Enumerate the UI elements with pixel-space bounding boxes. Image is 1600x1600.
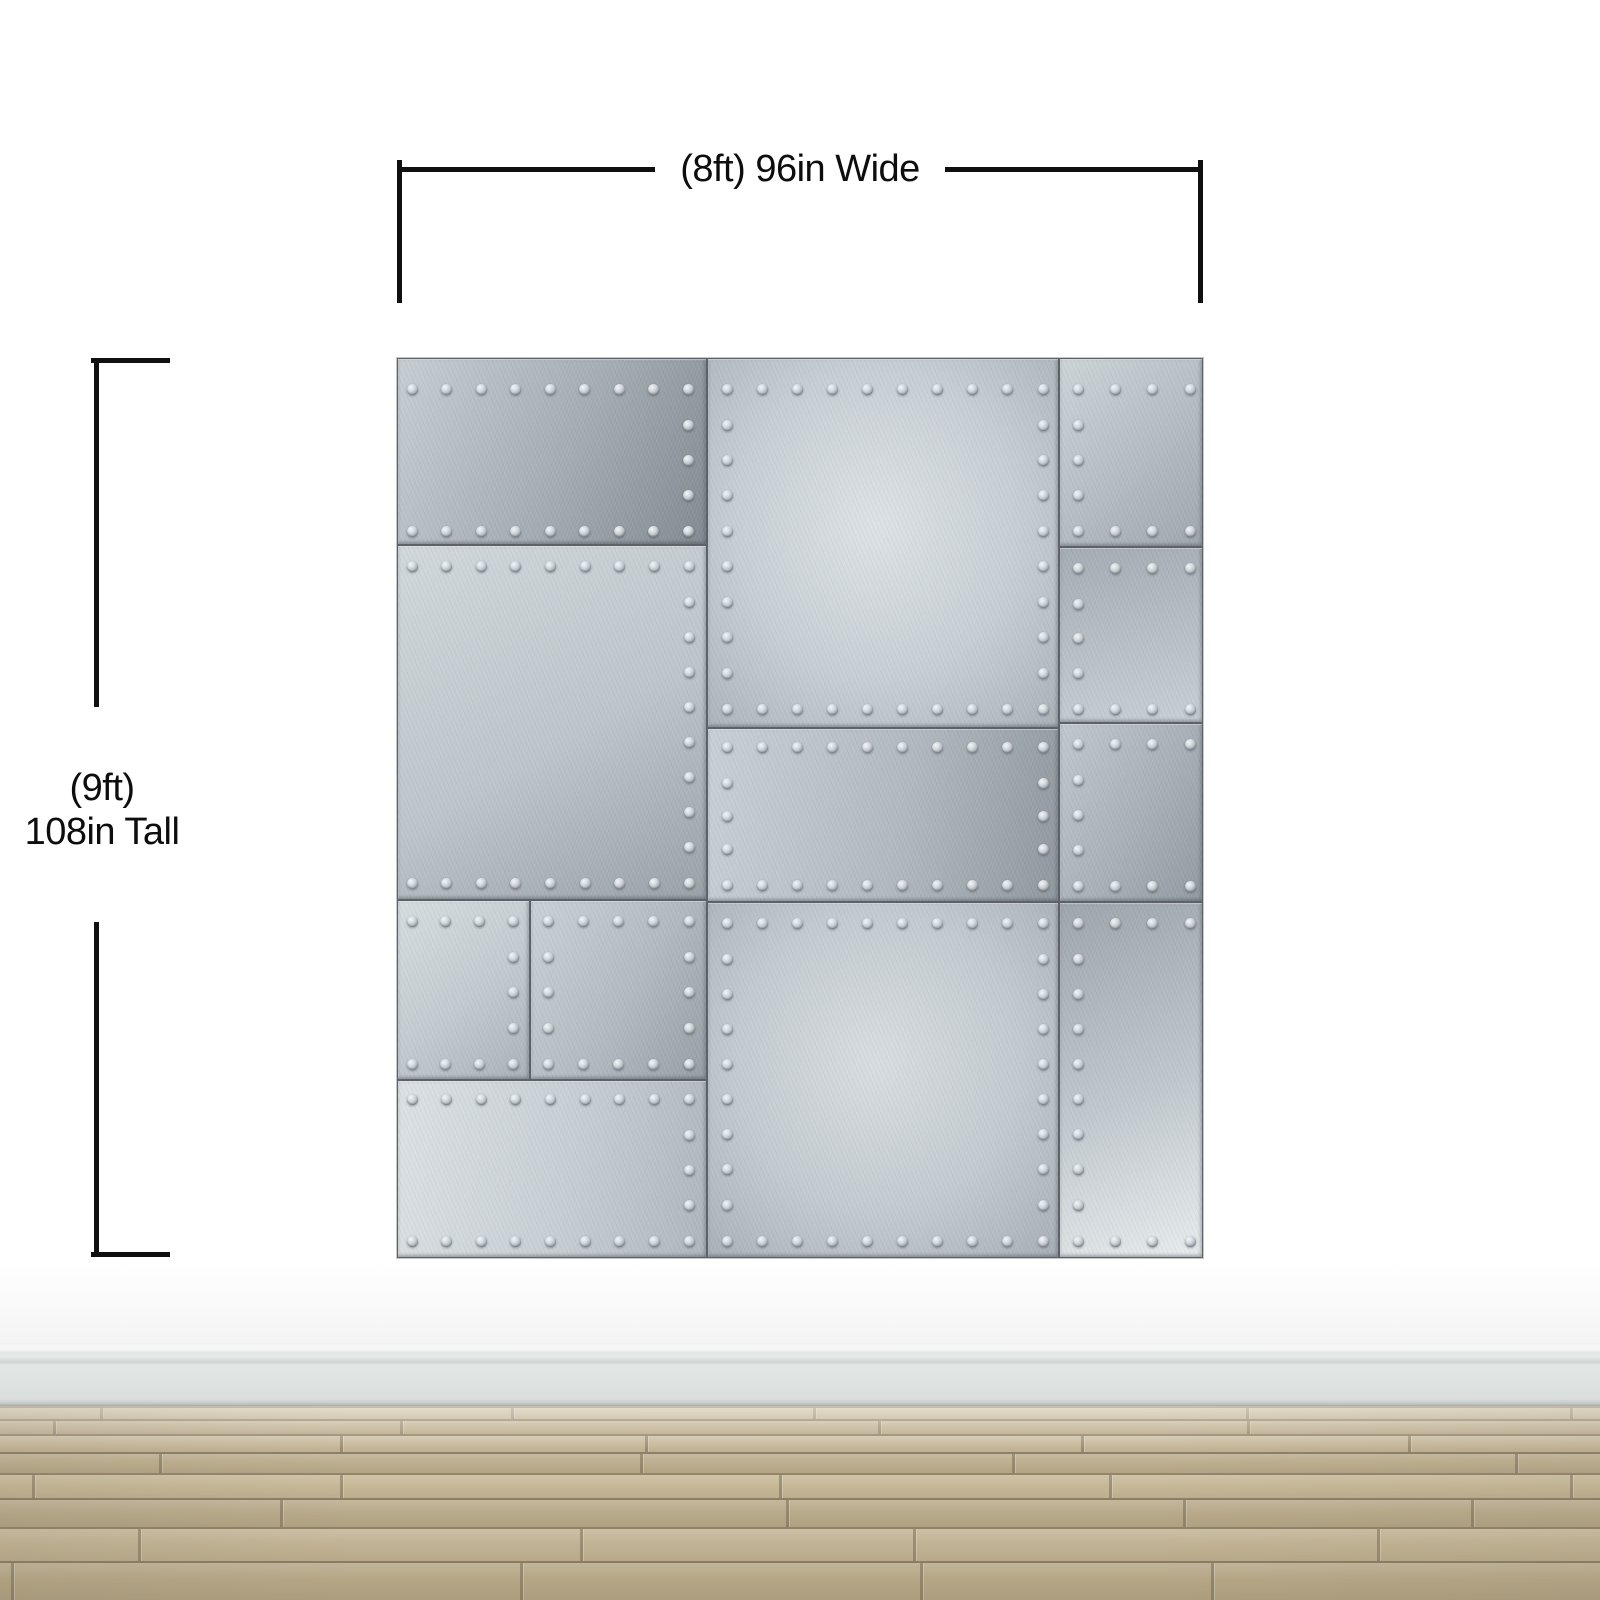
rivet	[1038, 844, 1049, 855]
rivet	[684, 632, 695, 643]
floor-plank-row	[0, 1419, 1600, 1434]
rivet	[578, 1059, 589, 1070]
rivet	[545, 878, 556, 889]
rivet	[1185, 918, 1196, 929]
plank-joint	[580, 1529, 583, 1563]
rivet	[1073, 954, 1084, 965]
rivet	[722, 742, 733, 753]
rivet	[827, 1236, 838, 1247]
rivet	[1002, 1236, 1013, 1247]
rivet	[1073, 989, 1084, 1000]
rivet	[1038, 420, 1049, 431]
rivet	[683, 490, 694, 501]
plank-joint	[32, 1475, 35, 1500]
rivet	[792, 880, 803, 891]
rivet	[757, 704, 768, 715]
rivet	[1002, 880, 1013, 891]
rivet	[1038, 455, 1049, 466]
rivet	[1147, 918, 1158, 929]
rivet	[684, 667, 695, 678]
rivet	[1073, 845, 1084, 856]
rivet	[543, 987, 554, 998]
brushed-metal-texture	[398, 546, 706, 899]
height-label: (9ft) 108in Tall	[0, 766, 204, 854]
rivet	[684, 702, 695, 713]
rivet	[407, 1059, 418, 1070]
rivet	[932, 880, 943, 891]
rivet	[897, 704, 908, 715]
rivet	[1185, 563, 1196, 574]
floor-plank-row	[0, 1452, 1600, 1473]
rivet	[967, 918, 978, 929]
rivet	[722, 844, 733, 855]
rivet	[684, 987, 695, 998]
rivet	[1002, 742, 1013, 753]
rivet	[649, 1236, 660, 1247]
rivet	[543, 916, 554, 927]
rivet	[722, 880, 733, 891]
rivet	[722, 632, 733, 643]
rivet	[1073, 633, 1084, 644]
rivet	[613, 1059, 624, 1070]
rivet	[1147, 739, 1158, 750]
width-label: (8ft) 96in Wide	[640, 147, 960, 191]
rivet	[649, 878, 660, 889]
rivet	[407, 1094, 418, 1105]
rivet	[757, 918, 768, 929]
rivet	[649, 1094, 660, 1105]
rivet	[441, 878, 452, 889]
rivet	[722, 597, 733, 608]
rivet	[862, 704, 873, 715]
rivet	[1038, 668, 1049, 679]
rivet	[614, 561, 625, 572]
rivet	[508, 1059, 519, 1070]
rivet	[722, 1024, 733, 1035]
rivet	[510, 878, 521, 889]
rivet	[827, 384, 838, 395]
rivet	[722, 526, 733, 537]
rivet	[440, 916, 451, 927]
rivet	[862, 1236, 873, 1247]
rivet	[1038, 561, 1049, 572]
rivet	[827, 704, 838, 715]
rivet	[1038, 954, 1049, 965]
rivet	[722, 455, 733, 466]
rivet	[545, 561, 556, 572]
rivet	[967, 704, 978, 715]
rivet	[722, 1059, 733, 1070]
rivet	[897, 1236, 908, 1247]
metal-plate	[398, 546, 706, 899]
rivet	[862, 384, 873, 395]
rivet	[684, 1023, 695, 1034]
rivet	[897, 880, 908, 891]
rivet	[722, 668, 733, 679]
rivet	[684, 597, 695, 608]
rivet	[792, 704, 803, 715]
metal-plate	[531, 901, 706, 1079]
rivet	[1002, 384, 1013, 395]
rivet	[722, 1129, 733, 1140]
rivet	[683, 526, 694, 537]
height-line-top	[94, 358, 99, 707]
rivet	[684, 1165, 695, 1176]
rivet	[510, 1094, 521, 1105]
baseboard	[0, 1343, 1600, 1406]
rivet	[476, 526, 487, 537]
rivet	[1038, 1024, 1049, 1035]
plank-joint	[1570, 1475, 1573, 1500]
rivet	[614, 878, 625, 889]
rivet	[1073, 455, 1084, 466]
rivet	[862, 880, 873, 891]
plank-joint	[280, 1500, 283, 1529]
rivet	[722, 1094, 733, 1105]
rivet	[1110, 881, 1121, 892]
rivet	[545, 1094, 556, 1105]
rivet	[827, 880, 838, 891]
rivet	[683, 384, 694, 395]
metal-plate	[1060, 359, 1202, 546]
rivet	[545, 384, 556, 395]
metal-plate	[708, 729, 1058, 901]
rivet	[440, 1059, 451, 1070]
rivet	[722, 1164, 733, 1175]
rivet	[545, 1236, 556, 1247]
rivet	[476, 561, 487, 572]
rivet	[1110, 918, 1121, 929]
rivet	[792, 1236, 803, 1247]
rivet	[510, 384, 521, 395]
rivet	[1110, 739, 1121, 750]
rivet	[476, 1236, 487, 1247]
rivet	[722, 561, 733, 572]
rivet	[683, 420, 694, 431]
rivet	[1002, 704, 1013, 715]
rivet	[722, 384, 733, 395]
rivet	[722, 954, 733, 965]
rivet	[1038, 704, 1049, 715]
rivet	[1073, 1236, 1084, 1247]
rivet	[578, 916, 589, 927]
rivet	[722, 778, 733, 789]
metal-plate	[398, 901, 529, 1079]
rivet	[614, 526, 625, 537]
plank-joint	[786, 1500, 789, 1529]
rivet	[1147, 563, 1158, 574]
brushed-metal-texture	[398, 1081, 706, 1257]
rivet	[1038, 880, 1049, 891]
rivet	[508, 952, 519, 963]
rivet	[510, 526, 521, 537]
rivet	[932, 918, 943, 929]
rivet	[441, 561, 452, 572]
width-tick-right	[1198, 160, 1203, 303]
rivet	[1073, 490, 1084, 501]
metal-plate	[1060, 903, 1202, 1257]
rivet	[684, 737, 695, 748]
height-label-line1: (9ft)	[0, 766, 204, 810]
rivet	[722, 420, 733, 431]
rivet	[1073, 775, 1084, 786]
rivet	[407, 916, 418, 927]
rivet	[1185, 384, 1196, 395]
plank-joint	[1183, 1500, 1186, 1529]
rivet	[407, 878, 418, 889]
rivet	[613, 916, 624, 927]
rivet	[932, 704, 943, 715]
rivet	[1038, 811, 1049, 822]
rivet	[897, 384, 908, 395]
rivet	[1073, 599, 1084, 610]
rivet	[474, 916, 485, 927]
rivet	[614, 1236, 625, 1247]
rivet	[1073, 1200, 1084, 1211]
rivet	[1073, 918, 1084, 929]
rivet	[1002, 918, 1013, 929]
rivet	[1073, 1024, 1084, 1035]
plank-joint	[11, 1563, 14, 1600]
rivet	[476, 878, 487, 889]
rivet	[897, 742, 908, 753]
rivet	[967, 1236, 978, 1247]
height-tick-bottom	[91, 1252, 170, 1257]
rivet	[1073, 563, 1084, 574]
plank-joint	[1377, 1529, 1380, 1563]
rivet	[1147, 881, 1158, 892]
rivet	[1185, 704, 1196, 715]
brushed-metal-texture	[708, 903, 1058, 1257]
plank-joint	[1012, 1454, 1015, 1475]
height-label-line2: 108in Tall	[0, 810, 204, 854]
rivet	[648, 384, 659, 395]
plank-joint	[340, 1475, 343, 1500]
rivet	[407, 384, 418, 395]
brushed-metal-texture	[531, 901, 706, 1079]
rivet	[722, 704, 733, 715]
rivet	[792, 742, 803, 753]
rivet	[1038, 989, 1049, 1000]
floor-plank-row	[0, 1498, 1600, 1527]
plank-joint	[1515, 1454, 1518, 1475]
rivet	[1185, 881, 1196, 892]
rivet	[545, 526, 556, 537]
rivet	[722, 490, 733, 501]
rivet	[1110, 526, 1121, 537]
rivet	[684, 1200, 695, 1211]
rivet	[441, 1094, 452, 1105]
rivet	[508, 916, 519, 927]
rivet	[684, 1236, 695, 1247]
rivet	[1038, 1164, 1049, 1175]
rivet	[1147, 704, 1158, 715]
rivet	[862, 742, 873, 753]
rivet	[1147, 1236, 1158, 1247]
rivet	[1038, 1094, 1049, 1105]
rivet	[441, 384, 452, 395]
floor-plank-row	[0, 1406, 1600, 1419]
plank-joint	[138, 1529, 141, 1563]
rivet	[1110, 704, 1121, 715]
rivet	[1147, 526, 1158, 537]
rivet	[1073, 1059, 1084, 1070]
rivet	[932, 384, 943, 395]
metal-plate	[398, 1081, 706, 1257]
rivet	[648, 526, 659, 537]
rivet	[722, 918, 733, 929]
rivet	[1038, 490, 1049, 501]
plank-joint	[640, 1454, 643, 1475]
rivet	[827, 742, 838, 753]
rivet	[1073, 1129, 1084, 1140]
rivet	[1038, 632, 1049, 643]
rivet	[1038, 1200, 1049, 1211]
rivet	[580, 1094, 591, 1105]
rivet	[1110, 384, 1121, 395]
rivet	[1073, 668, 1084, 679]
rivet	[1038, 742, 1049, 753]
rivet	[684, 916, 695, 927]
rivet	[579, 526, 590, 537]
metal-plate	[708, 359, 1058, 727]
rivet	[407, 561, 418, 572]
rivet	[1038, 1129, 1049, 1140]
plank-joint	[920, 1563, 923, 1600]
rivet	[1147, 384, 1158, 395]
rivet	[1110, 1236, 1121, 1247]
wall-mural	[397, 358, 1203, 1258]
rivet	[967, 384, 978, 395]
rivet	[1185, 526, 1196, 537]
rivet	[1110, 563, 1121, 574]
floor-plank-row	[0, 1527, 1600, 1561]
rivet	[1073, 881, 1084, 892]
rivet	[1185, 739, 1196, 750]
rivet	[1073, 1094, 1084, 1105]
rivet	[476, 1094, 487, 1105]
rivet	[684, 878, 695, 889]
rivet	[1073, 420, 1084, 431]
rivet	[722, 811, 733, 822]
rivet	[649, 561, 660, 572]
rivet	[897, 918, 908, 929]
rivet	[932, 1236, 943, 1247]
rivet	[932, 742, 943, 753]
rivet	[722, 989, 733, 1000]
brushed-metal-texture	[708, 729, 1058, 901]
metal-plate	[1060, 724, 1202, 901]
rivet	[757, 384, 768, 395]
rivet	[757, 880, 768, 891]
rivet	[722, 1200, 733, 1211]
plank-joint	[913, 1529, 916, 1563]
rivet	[648, 1059, 659, 1070]
floor-plank-row	[0, 1434, 1600, 1452]
width-tick-left	[397, 160, 402, 303]
brushed-metal-texture	[708, 359, 1058, 727]
rivet	[684, 842, 695, 853]
rivet	[441, 1236, 452, 1247]
rivet	[967, 742, 978, 753]
rivet	[407, 1236, 418, 1247]
height-tick-top	[91, 358, 170, 363]
rivet	[508, 1023, 519, 1034]
rivet	[580, 1236, 591, 1247]
rivet	[474, 1059, 485, 1070]
rivet	[510, 1236, 521, 1247]
rivet	[580, 878, 591, 889]
rivet	[1073, 1164, 1084, 1175]
plank-joint	[520, 1563, 523, 1600]
rivet	[684, 952, 695, 963]
rivet	[684, 1094, 695, 1105]
rivet	[1073, 526, 1084, 537]
floor-plank-row	[0, 1561, 1600, 1600]
rivet	[792, 384, 803, 395]
rivet	[579, 384, 590, 395]
rivet	[757, 742, 768, 753]
wood-floor	[0, 1406, 1600, 1600]
plank-joint	[1211, 1563, 1214, 1600]
rivet	[684, 1059, 695, 1070]
rivet	[1185, 1236, 1196, 1247]
rivet	[614, 384, 625, 395]
rivet	[580, 561, 591, 572]
rivet	[1038, 597, 1049, 608]
rivet	[1073, 384, 1084, 395]
rivet	[684, 807, 695, 818]
metal-plate	[708, 903, 1058, 1257]
rivet	[407, 526, 418, 537]
metal-plate	[1060, 548, 1202, 722]
rivet	[441, 526, 452, 537]
rivet	[684, 772, 695, 783]
rivet	[827, 918, 838, 929]
plank-joint	[1109, 1475, 1112, 1500]
rivet	[967, 880, 978, 891]
metal-plate	[398, 359, 706, 544]
rivet	[722, 1236, 733, 1247]
rivet	[684, 561, 695, 572]
rivet	[543, 1023, 554, 1034]
rivet	[543, 1059, 554, 1070]
rivet	[1038, 384, 1049, 395]
product-size-mockup: (8ft) 96in Wide (9ft) 108in Tall	[0, 0, 1600, 1600]
rivet	[1038, 1236, 1049, 1247]
rivet	[862, 918, 873, 929]
rivet	[476, 384, 487, 395]
rivet	[792, 918, 803, 929]
width-line-left	[397, 167, 655, 172]
plank-joint	[1471, 1500, 1474, 1529]
plank-joint	[159, 1454, 162, 1475]
plank-joint	[779, 1475, 782, 1500]
floor-plank-row	[0, 1473, 1600, 1498]
rivet	[757, 1236, 768, 1247]
rivet	[648, 916, 659, 927]
rivet	[683, 455, 694, 466]
rivet	[684, 1130, 695, 1141]
rivet	[1038, 1059, 1049, 1070]
rivet	[614, 1094, 625, 1105]
rivet	[1073, 704, 1084, 715]
rivet	[510, 561, 521, 572]
rivet	[508, 987, 519, 998]
width-line-right	[945, 167, 1203, 172]
rivet	[1038, 918, 1049, 929]
rivet	[543, 952, 554, 963]
